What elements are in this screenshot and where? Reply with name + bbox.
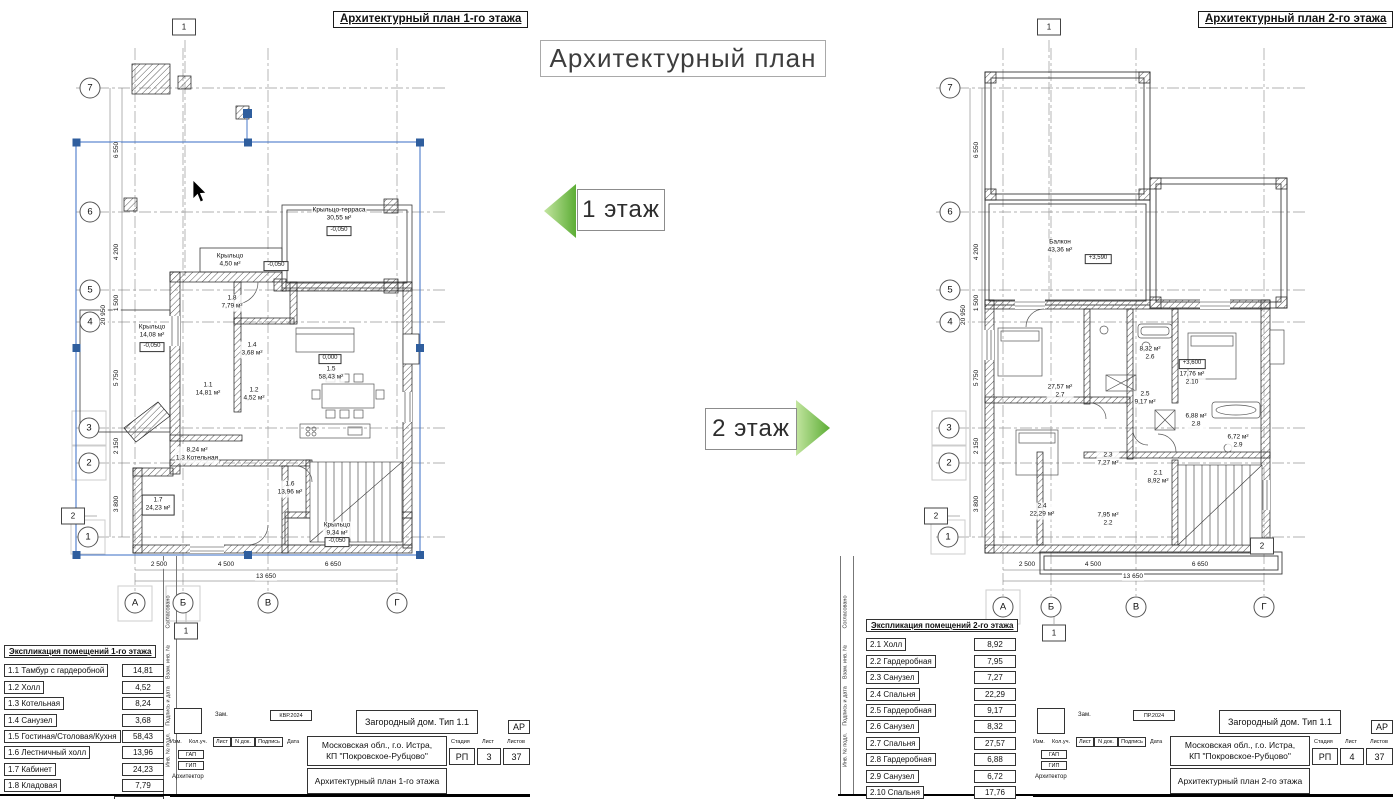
room-label: 1.1 14,81 м²: [195, 382, 222, 399]
room-label: 2.1 8,92 м²: [1146, 470, 1169, 487]
section-flag: 1: [1042, 625, 1066, 642]
room-area: 8,32: [974, 720, 1016, 733]
level-mark: -0,050: [326, 226, 351, 236]
stamp-column-label: Взам. инв. №: [842, 645, 849, 679]
stamp-column-label: Согласовано: [842, 595, 849, 628]
grid-bubble: 1: [938, 527, 959, 548]
explication-row: 1.2 Холл4,52: [4, 681, 164, 694]
role-gap: ГАП: [1041, 750, 1067, 759]
dimension-label: 5 750: [973, 370, 981, 386]
sheets-total: 37: [1366, 748, 1393, 765]
dimension-label: 6 550: [113, 142, 121, 158]
room-label: Крыльцо 9,34 м²: [323, 522, 352, 539]
grid-bubble: В: [258, 593, 279, 614]
explication-row: 1.3 Котельная8,24: [4, 697, 164, 710]
room-area: 6,88: [974, 753, 1016, 766]
floor1-plan-title: Архитектурный план 1-го этажа: [333, 11, 528, 28]
role-gip: ГИП: [1041, 761, 1067, 770]
col-koluch: Кол.уч.: [1052, 739, 1070, 745]
explication-row: 1.1 Тамбур с гардеробной14,81: [4, 664, 164, 677]
room-label: 1.5 58,43 м²: [318, 366, 345, 383]
revision-label: Зам.: [215, 712, 228, 718]
grid-bubble: А: [125, 593, 146, 614]
explication-row: 1.6 Лестничный холл13,96: [4, 746, 164, 759]
col-izm: Изм.: [1033, 739, 1045, 745]
room-label: 6,88 м² 2.8: [1184, 413, 1207, 430]
level-mark: +3,590: [1085, 254, 1112, 264]
room-name: 2.6 Санузел: [866, 720, 919, 733]
level-mark: -0,050: [263, 261, 288, 271]
col-ndok: N док.: [1094, 737, 1118, 747]
floor2-stairs: [1178, 465, 1262, 545]
room-area: 4,52: [122, 681, 164, 694]
room-label: 2.4 22,29 м²: [1029, 503, 1056, 520]
grid-bubble: 4: [940, 312, 961, 333]
grid-bubble: Б: [1041, 597, 1062, 618]
sheet-number: 3: [477, 748, 501, 765]
titleblock-floor2: Зам. ПР.2024 Изм. Кол.уч. Лист N док. По…: [1033, 708, 1393, 797]
drawing-name: Архитектурный план 1-го этажа: [307, 768, 447, 794]
dimension-label: 4 200: [113, 244, 121, 260]
role-gap: ГАП: [178, 750, 204, 759]
grid-bubble: 1: [78, 527, 99, 548]
room-label: Крыльцо 4,50 м²: [216, 253, 245, 270]
room-name: 1.8 Кладовая: [4, 779, 61, 792]
room-name: 2.10 Спальня: [866, 786, 924, 799]
titleblock-cell: [1037, 708, 1065, 734]
room-area: 14,81: [122, 664, 164, 677]
col-data: Дата: [1150, 739, 1162, 745]
level-mark: +3,600: [1179, 359, 1206, 369]
stamp-column-label: Согласовано: [165, 595, 172, 628]
room-label: 6,72 м² 2.9: [1226, 434, 1249, 451]
sheet-number: 4: [1340, 748, 1364, 765]
plan-drawing-layer[interactable]: [0, 0, 1393, 799]
explication-row: 1.5 Гостиная/Столовая/Кухня58,43: [4, 730, 164, 743]
doc-code: ПР.2024: [1133, 710, 1175, 721]
explication-row: 1.8 Кладовая7,79: [4, 779, 164, 792]
room-area: 7,27: [974, 671, 1016, 684]
room-name: 1.5 Гостиная/Столовая/Кухня: [4, 730, 121, 743]
grid-bubble: Б: [173, 593, 194, 614]
room-name: 2.3 Санузел: [866, 671, 919, 684]
level-mark: -0,050: [139, 342, 164, 352]
address-line2: КП "Покровское-Рубцово": [1189, 751, 1291, 761]
room-area: 6,72: [974, 770, 1016, 783]
explication-row: 2.1 Холл8,92: [866, 638, 1016, 651]
explication-row: 2.10 Спальня17,76: [866, 786, 1016, 799]
grid-bubble: 6: [940, 202, 961, 223]
total-area: 135,66 м²: [114, 796, 164, 799]
room-name: 1.2 Холл: [4, 681, 44, 694]
role-gip: ГИП: [178, 761, 204, 770]
room-area: 3,68: [122, 714, 164, 727]
section-flag: 2: [61, 508, 85, 525]
section-flag: 1: [172, 19, 196, 36]
grid-bubble: 4: [80, 312, 101, 333]
grid-bubble: 5: [940, 280, 961, 301]
room-label: 2.5 9,17 м²: [1133, 391, 1156, 408]
dimension-label: 1 500: [973, 295, 981, 311]
stage-value: РП: [1312, 748, 1338, 765]
room-label: 1.4 3,68 м²: [240, 342, 263, 359]
floor1-arrow-icon[interactable]: [544, 184, 576, 238]
room-name: 2.9 Санузел: [866, 770, 919, 783]
stage-value: РП: [449, 748, 475, 765]
room-label: 2.3 7,27 м²: [1096, 452, 1119, 469]
project-name: Загородный дом. Тип 1.1: [1219, 710, 1341, 734]
mark-code: АР: [1371, 720, 1393, 734]
room-label: Крыльцо-терраса 30,55 м²: [312, 207, 367, 224]
grid-bubble: Г: [1254, 597, 1275, 618]
explication-table-floor2: Экспликация помещений 2-го этажа 2.1 Хол…: [866, 619, 1016, 799]
room-area: 9,17: [974, 704, 1016, 717]
dimension-label: 2 500: [150, 561, 168, 569]
level-mark: -0,050: [324, 537, 349, 547]
room-label: 8,24 м² 1.3 Котельная: [175, 447, 219, 464]
room-label: Крыльцо 14,08 м²: [138, 324, 167, 341]
section-flag: 2: [924, 508, 948, 525]
col-podpis: Подпись: [1118, 737, 1146, 747]
room-area: 22,29: [974, 688, 1016, 701]
role-architect: Архитектор: [172, 774, 204, 780]
room-name: 1.1 Тамбур с гардеробной: [4, 664, 108, 677]
dimension-label: 2 150: [973, 438, 981, 454]
address-line1: Московская обл., г.о. Истра,: [322, 740, 432, 750]
dimension-label: 2 500: [1018, 561, 1036, 569]
explication-row: 1.7 Кабинет24,23: [4, 763, 164, 776]
explication-row: 2.5 Гардеробная9,17: [866, 704, 1016, 717]
col-ndok: N док.: [231, 737, 255, 747]
mouse-cursor: [193, 180, 206, 202]
grid-bubble: В: [1126, 597, 1147, 618]
level-mark: 0,000: [318, 354, 341, 364]
explication-row: 2.7 Спальня27,57: [866, 737, 1016, 750]
grid-bubble: 2: [939, 453, 960, 474]
room-area: 27,57: [974, 737, 1016, 750]
explication-row: 1.4 Санузел3,68: [4, 714, 164, 727]
dimension-label: 6 650: [324, 561, 342, 569]
room-area: 8,24: [122, 697, 164, 710]
grid-bubble: 7: [80, 78, 101, 99]
doc-code: КВР.2024: [270, 710, 312, 721]
room-name: 1.6 Лестничный холл: [4, 746, 90, 759]
address-line2: КП "Покровское-Рубцово": [326, 751, 428, 761]
dimension-label: 2 150: [113, 438, 121, 454]
room-area: 7,95: [974, 655, 1016, 668]
sheets-label: Листов: [1370, 739, 1388, 745]
project-address: Московская обл., г.о. Истра, КП "Покровс…: [1170, 736, 1310, 766]
room-label: Балкон 43,36 м²: [1047, 239, 1074, 256]
sheet-label: Лист: [1345, 739, 1357, 745]
grid-bubble: 2: [79, 453, 100, 474]
grid-bubble: Г: [387, 593, 408, 614]
role-architect: Архитектор: [1035, 774, 1067, 780]
grid-bubble: 6: [80, 202, 101, 223]
dimension-label: 6 650: [1191, 561, 1209, 569]
room-area: 58,43: [122, 730, 164, 743]
explication-row: 2.4 Спальня22,29: [866, 688, 1016, 701]
dimension-label: 20 950: [100, 305, 108, 325]
explication-row: 2.8 Гардеробная6,88: [866, 753, 1016, 766]
dimension-label: 6 550: [973, 142, 981, 158]
explication-total-row: 135,66 м²: [4, 796, 164, 799]
room-area: 13,96: [122, 746, 164, 759]
room-label: 17,76 м² 2.10: [1179, 371, 1206, 388]
stamp-column-label: Взам. инв. №: [165, 645, 172, 679]
floor1-tag[interactable]: 1 этаж: [577, 189, 665, 231]
room-label: 1.7 24,23 м²: [142, 495, 175, 516]
dimension-label: 4 500: [1084, 561, 1102, 569]
room-label: 1.2 4,52 м²: [242, 387, 265, 404]
dimension-label: 5 750: [113, 370, 121, 386]
col-izm: Изм.: [170, 739, 182, 745]
section-flag: 1: [1037, 19, 1061, 36]
floor2-tag[interactable]: 2 этаж: [705, 408, 797, 450]
room-area: 17,76: [974, 786, 1016, 799]
stamp-column-label: Подпись и дата: [842, 686, 849, 726]
floor1-ramp: [124, 402, 170, 442]
drawing-name: Архитектурный план 2-го этажа: [1170, 768, 1310, 794]
sheet2-stamp-strip: [853, 556, 854, 794]
page-title: Архитектурный план: [540, 40, 826, 77]
grid-bubble: 3: [939, 418, 960, 439]
room-area: 24,23: [122, 763, 164, 776]
grid-bubble: 3: [79, 418, 100, 439]
explication-row: 2.2 Гардеробная7,95: [866, 655, 1016, 668]
explication-row: 2.9 Санузел6,72: [866, 770, 1016, 783]
room-label: 7,95 м² 2.2: [1096, 512, 1119, 529]
dimension-label: 1 500: [113, 295, 121, 311]
explication-title: Экспликация помещений 2-го этажа: [866, 619, 1018, 632]
grid-bubble: 5: [80, 280, 101, 301]
col-data: Дата: [287, 739, 299, 745]
room-name: 1.4 Санузел: [4, 714, 57, 727]
grid-bubble: 7: [940, 78, 961, 99]
col-koluch: Кол.уч.: [189, 739, 207, 745]
section-flag: 1: [174, 623, 198, 640]
explication-title: Экспликация помещений 1-го этажа: [4, 645, 156, 658]
col-list: Лист: [1076, 737, 1094, 747]
explication-row: 2.3 Санузел7,27: [866, 671, 1016, 684]
room-name: 1.7 Кабинет: [4, 763, 56, 776]
dimension-label: 13 650: [255, 573, 277, 581]
revision-label: Зам.: [1078, 712, 1091, 718]
room-name: 1.3 Котельная: [4, 697, 64, 710]
dimension-label: 3 800: [113, 496, 121, 512]
room-name: 2.2 Гардеробная: [866, 655, 936, 668]
sheet-label: Лист: [482, 739, 494, 745]
sheet2-stamp-strip: [840, 556, 841, 794]
room-name: 2.5 Гардеробная: [866, 704, 936, 717]
room-label: 27,57 м² 2.7: [1047, 384, 1074, 401]
floor2-plan-title: Архитектурный план 2-го этажа: [1198, 11, 1393, 28]
col-podpis: Подпись: [255, 737, 283, 747]
room-label: 8,32 м² 2.6: [1138, 346, 1161, 363]
dimension-label: 4 200: [973, 244, 981, 260]
room-name: 2.7 Спальня: [866, 737, 920, 750]
stage-label: Стадия: [451, 739, 470, 745]
room-area: 7,79: [122, 779, 164, 792]
col-list: Лист: [213, 737, 231, 747]
dimension-label: 4 500: [217, 561, 235, 569]
room-name: 2.1 Холл: [866, 638, 906, 651]
address-line1: Московская обл., г.о. Истра,: [1185, 740, 1295, 750]
stamp-column-label: Инв. № подл.: [842, 733, 849, 767]
dimension-label: 3 800: [973, 496, 981, 512]
room-label: 1.6 13,96 м²: [277, 481, 304, 498]
stage-label: Стадия: [1314, 739, 1333, 745]
room-name: 2.8 Гардеробная: [866, 753, 936, 766]
explication-table-floor1: Экспликация помещений 1-го этажа 1.1 Там…: [4, 645, 164, 799]
room-name: 2.4 Спальня: [866, 688, 920, 701]
dimension-label: 20 950: [960, 305, 968, 325]
project-name: Загородный дом. Тип 1.1: [356, 710, 478, 734]
titleblock-cell: [174, 708, 202, 734]
project-address: Московская обл., г.о. Истра, КП "Покровс…: [307, 736, 447, 766]
section-flag: 2: [1250, 538, 1274, 555]
dimension-label: 13 650: [1122, 573, 1144, 581]
grid-bubble: А: [993, 597, 1014, 618]
sheets-label: Листов: [507, 739, 525, 745]
titleblock-floor1: Зам. КВР.2024 Изм. Кол.уч. Лист N док. П…: [170, 708, 530, 797]
cad-canvas[interactable]: { "page": { "main_title": "Архитектурный…: [0, 0, 1393, 799]
explication-row: 2.6 Санузел8,32: [866, 720, 1016, 733]
sheets-total: 37: [503, 748, 530, 765]
room-area: 8,92: [974, 638, 1016, 651]
room-label: 1.8 7,79 м²: [220, 295, 243, 312]
floor2-arrow-icon[interactable]: [796, 400, 830, 456]
mark-code: АР: [508, 720, 530, 734]
